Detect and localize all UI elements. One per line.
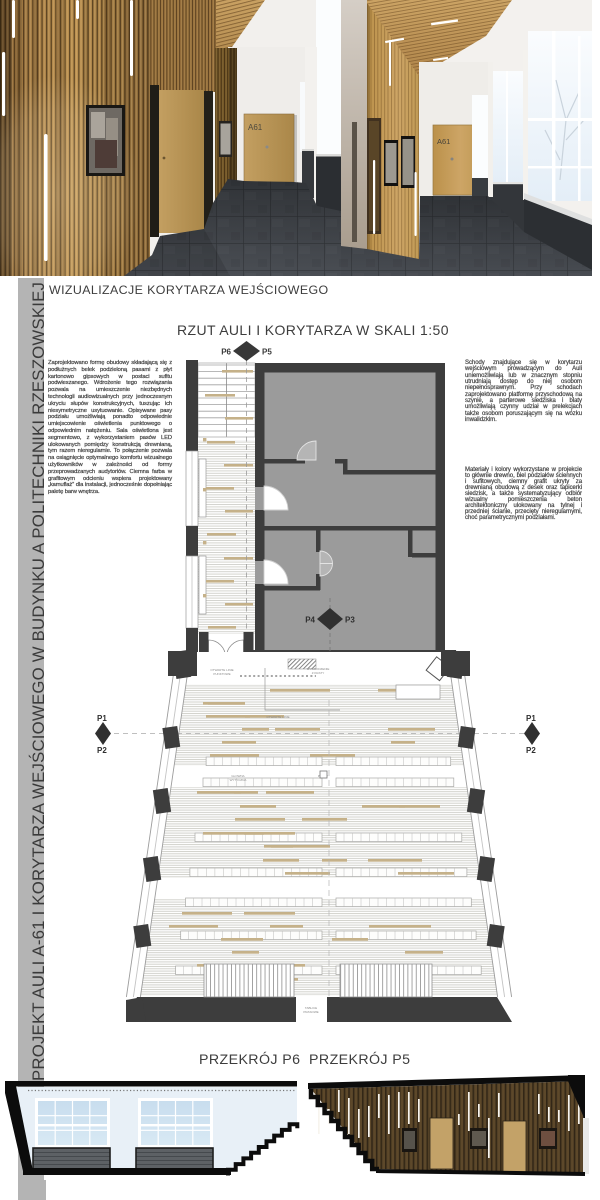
svg-text:P1: P1	[97, 714, 107, 723]
svg-text:P6: P6	[221, 348, 231, 357]
svg-text:A61: A61	[248, 123, 263, 132]
svg-text:P3: P3	[345, 616, 355, 625]
svg-text:P2: P2	[97, 746, 107, 755]
svg-text:A61: A61	[437, 137, 450, 146]
svg-text:WYTYCZNA: WYTYCZNA	[230, 778, 247, 782]
svg-text:Z KRATY: Z KRATY	[312, 671, 324, 675]
svg-text:PUNKTOWE: PUNKTOWE	[213, 672, 230, 676]
svg-text:P5: P5	[262, 348, 272, 357]
svg-text:P2: P2	[526, 746, 536, 755]
svg-text:OTWARTE LINIE: OTWARTE LINIE	[266, 715, 289, 719]
svg-text:PRASOWE: PRASOWE	[303, 1010, 318, 1014]
svg-text:P1: P1	[526, 714, 536, 723]
svg-text:P4: P4	[305, 616, 315, 625]
